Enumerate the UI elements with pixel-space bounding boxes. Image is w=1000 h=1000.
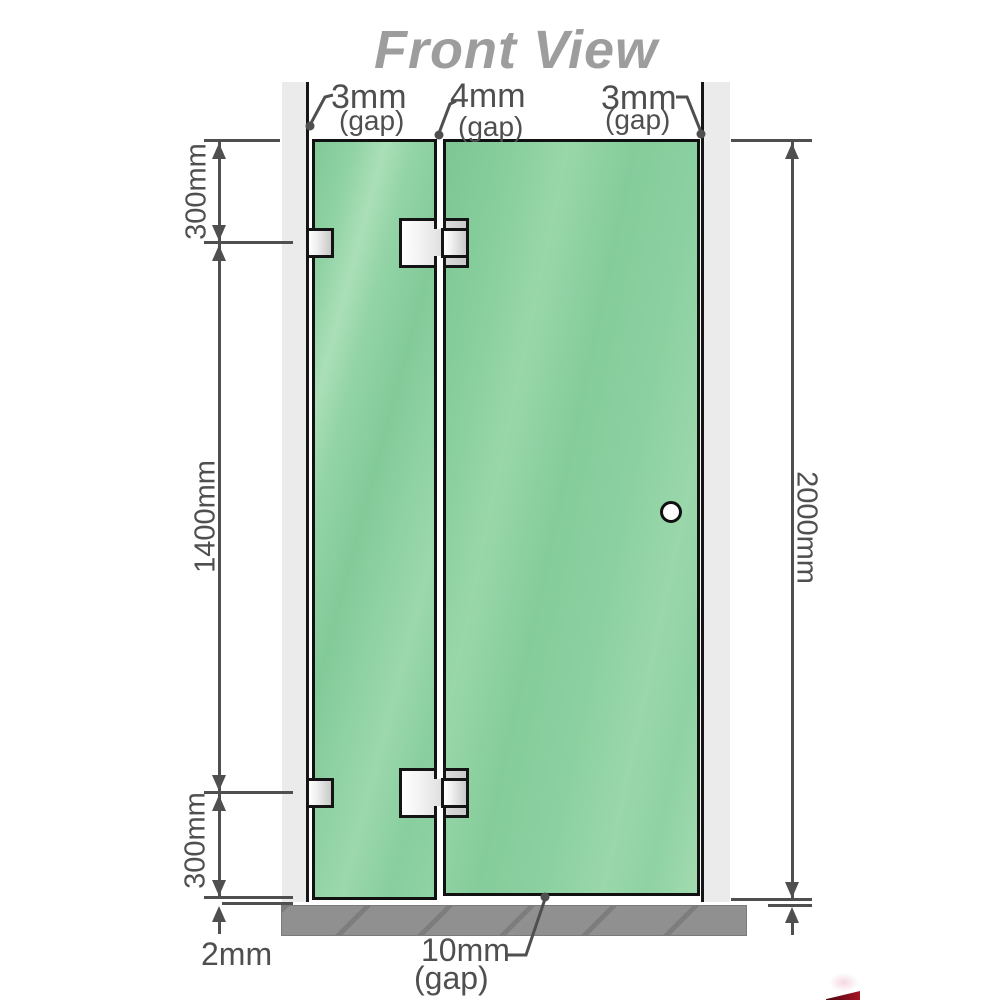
dimension-tick [731, 898, 812, 901]
dim-label-floor-gap: 2mm [201, 938, 272, 970]
gap-label-bottom-sub: (gap) [414, 962, 489, 994]
hinge-top-gap-lower [434, 256, 446, 270]
corner-watermark-red [826, 991, 860, 1000]
corner-watermark-haze [829, 973, 859, 992]
hinge-bottom-gap-upper [434, 765, 446, 779]
gap-label-top-left-sub: (gap) [339, 107, 404, 135]
hinge-top-inner-plate [441, 228, 469, 258]
floor-base [281, 905, 747, 936]
door-handle-knob [660, 501, 682, 523]
page-title: Front View [281, 22, 751, 79]
dimension-tick [731, 139, 812, 142]
hinge-bottom-inner-plate [441, 778, 469, 808]
gap-label-top-middle-sub: (gap) [458, 113, 523, 141]
dimension-tick [204, 241, 293, 244]
dim-label-left-top: 300mm [183, 132, 212, 252]
dimension-arrow-up [212, 143, 226, 159]
dim-label-left-bottom: 300mm [182, 781, 211, 901]
dimension-arrow-down [212, 775, 226, 791]
dimension-tick [204, 896, 293, 899]
dimension-stem [791, 921, 794, 935]
wall-bracket-bottom [306, 778, 334, 808]
dimension-tick [204, 139, 280, 142]
dimension-arrow-up [785, 143, 799, 159]
dim-label-right-height: 2000mm [792, 458, 821, 598]
hinge-bottom-gap-lower [434, 806, 446, 820]
wall-bracket-top [306, 228, 334, 258]
diagram-canvas: Front View 300mm 1400mm 300mm 20 [0, 0, 1000, 1000]
dimension-arrow-up [212, 245, 226, 261]
dimension-stem [218, 920, 221, 934]
gap-label-top-middle: 4mm [450, 79, 526, 113]
dimension-arrow-up [212, 795, 226, 811]
dimension-arrow-down [212, 225, 226, 241]
dimension-arrow-down [785, 882, 799, 898]
dimension-arrow-down [212, 880, 226, 896]
left-wall [282, 82, 306, 902]
gap-label-top-right-sub: (gap) [605, 106, 670, 134]
dimension-tick [204, 791, 293, 794]
hinge-top-gap-upper [434, 215, 446, 229]
right-wall [704, 82, 730, 902]
dimension-tick [222, 902, 293, 905]
dim-label-left-middle: 1400mm [192, 447, 221, 587]
